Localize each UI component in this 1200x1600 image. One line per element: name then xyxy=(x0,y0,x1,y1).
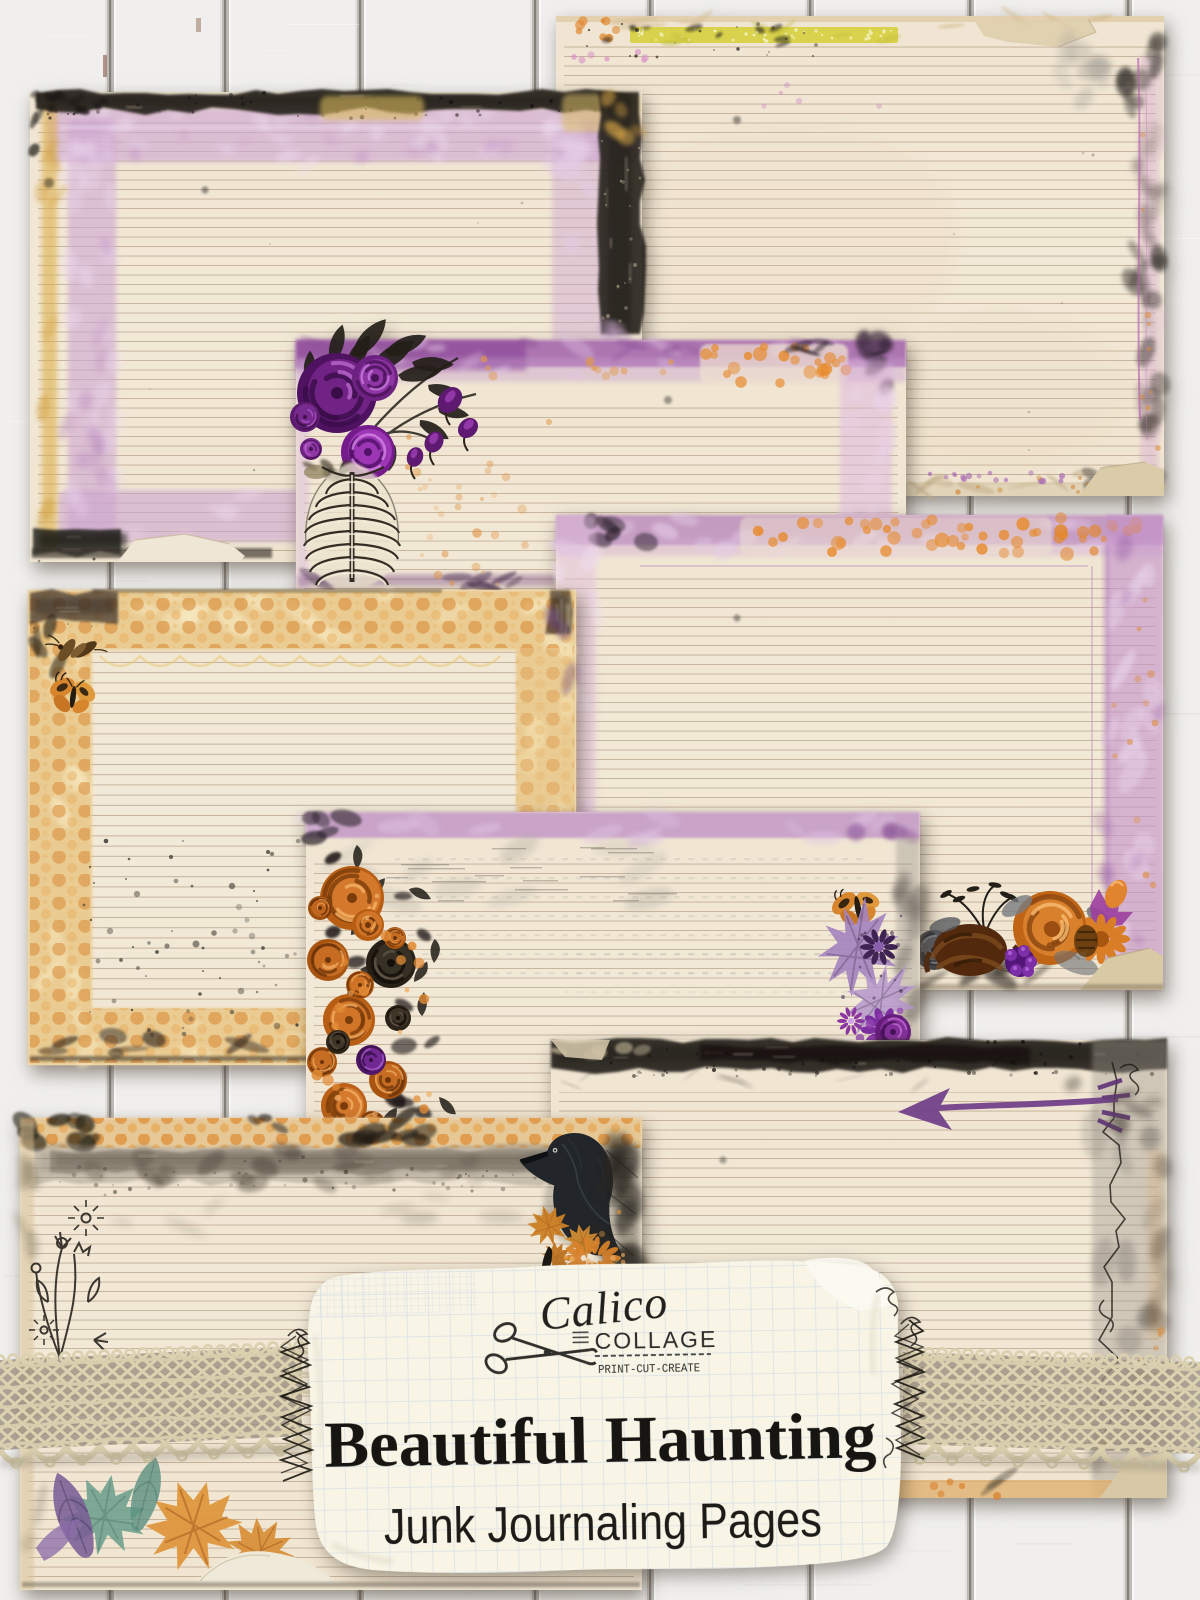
svg-text:COLLAGE: COLLAGE xyxy=(594,1326,717,1354)
svg-text:Junk Journaling Pages: Junk Journaling Pages xyxy=(383,1491,822,1555)
svg-text:Beautiful Haunting: Beautiful Haunting xyxy=(324,1399,877,1482)
svg-text:PRINT-CUT-CREATE: PRINT-CUT-CREATE xyxy=(598,1361,700,1377)
